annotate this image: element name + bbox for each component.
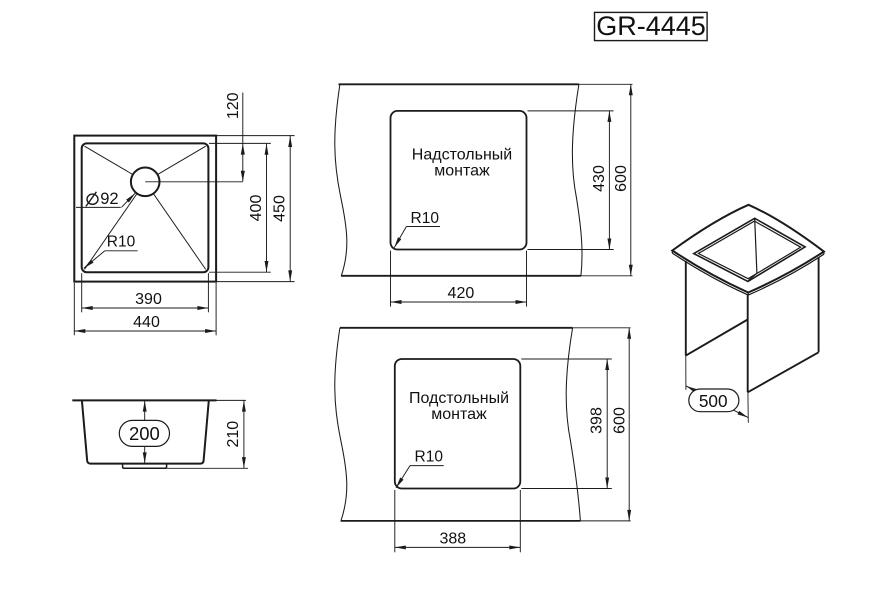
- svg-text:R10: R10: [415, 448, 444, 465]
- svg-text:430: 430: [591, 165, 608, 192]
- svg-text:450: 450: [271, 195, 288, 222]
- svg-text:210: 210: [225, 421, 242, 448]
- svg-text:398: 398: [588, 407, 605, 434]
- svg-text:R10: R10: [411, 210, 440, 227]
- svg-text:400: 400: [248, 195, 265, 222]
- svg-text:120: 120: [225, 92, 242, 119]
- svg-text:Подстольный: Подстольный: [409, 390, 509, 407]
- svg-text:500: 500: [699, 391, 728, 411]
- svg-text:92: 92: [100, 190, 118, 208]
- svg-text:420: 420: [448, 285, 475, 302]
- svg-text:390: 390: [135, 291, 162, 308]
- svg-text:GR-4445: GR-4445: [596, 11, 706, 41]
- svg-text:Надстольный: Надстольный: [412, 147, 512, 164]
- svg-text:388: 388: [439, 530, 466, 547]
- svg-text:R10: R10: [107, 233, 136, 250]
- svg-text:монтаж: монтаж: [431, 406, 487, 423]
- svg-text:600: 600: [611, 407, 628, 434]
- svg-text:200: 200: [129, 423, 160, 444]
- svg-text:монтаж: монтаж: [434, 162, 490, 179]
- svg-text:440: 440: [133, 314, 160, 331]
- svg-text:600: 600: [613, 165, 630, 192]
